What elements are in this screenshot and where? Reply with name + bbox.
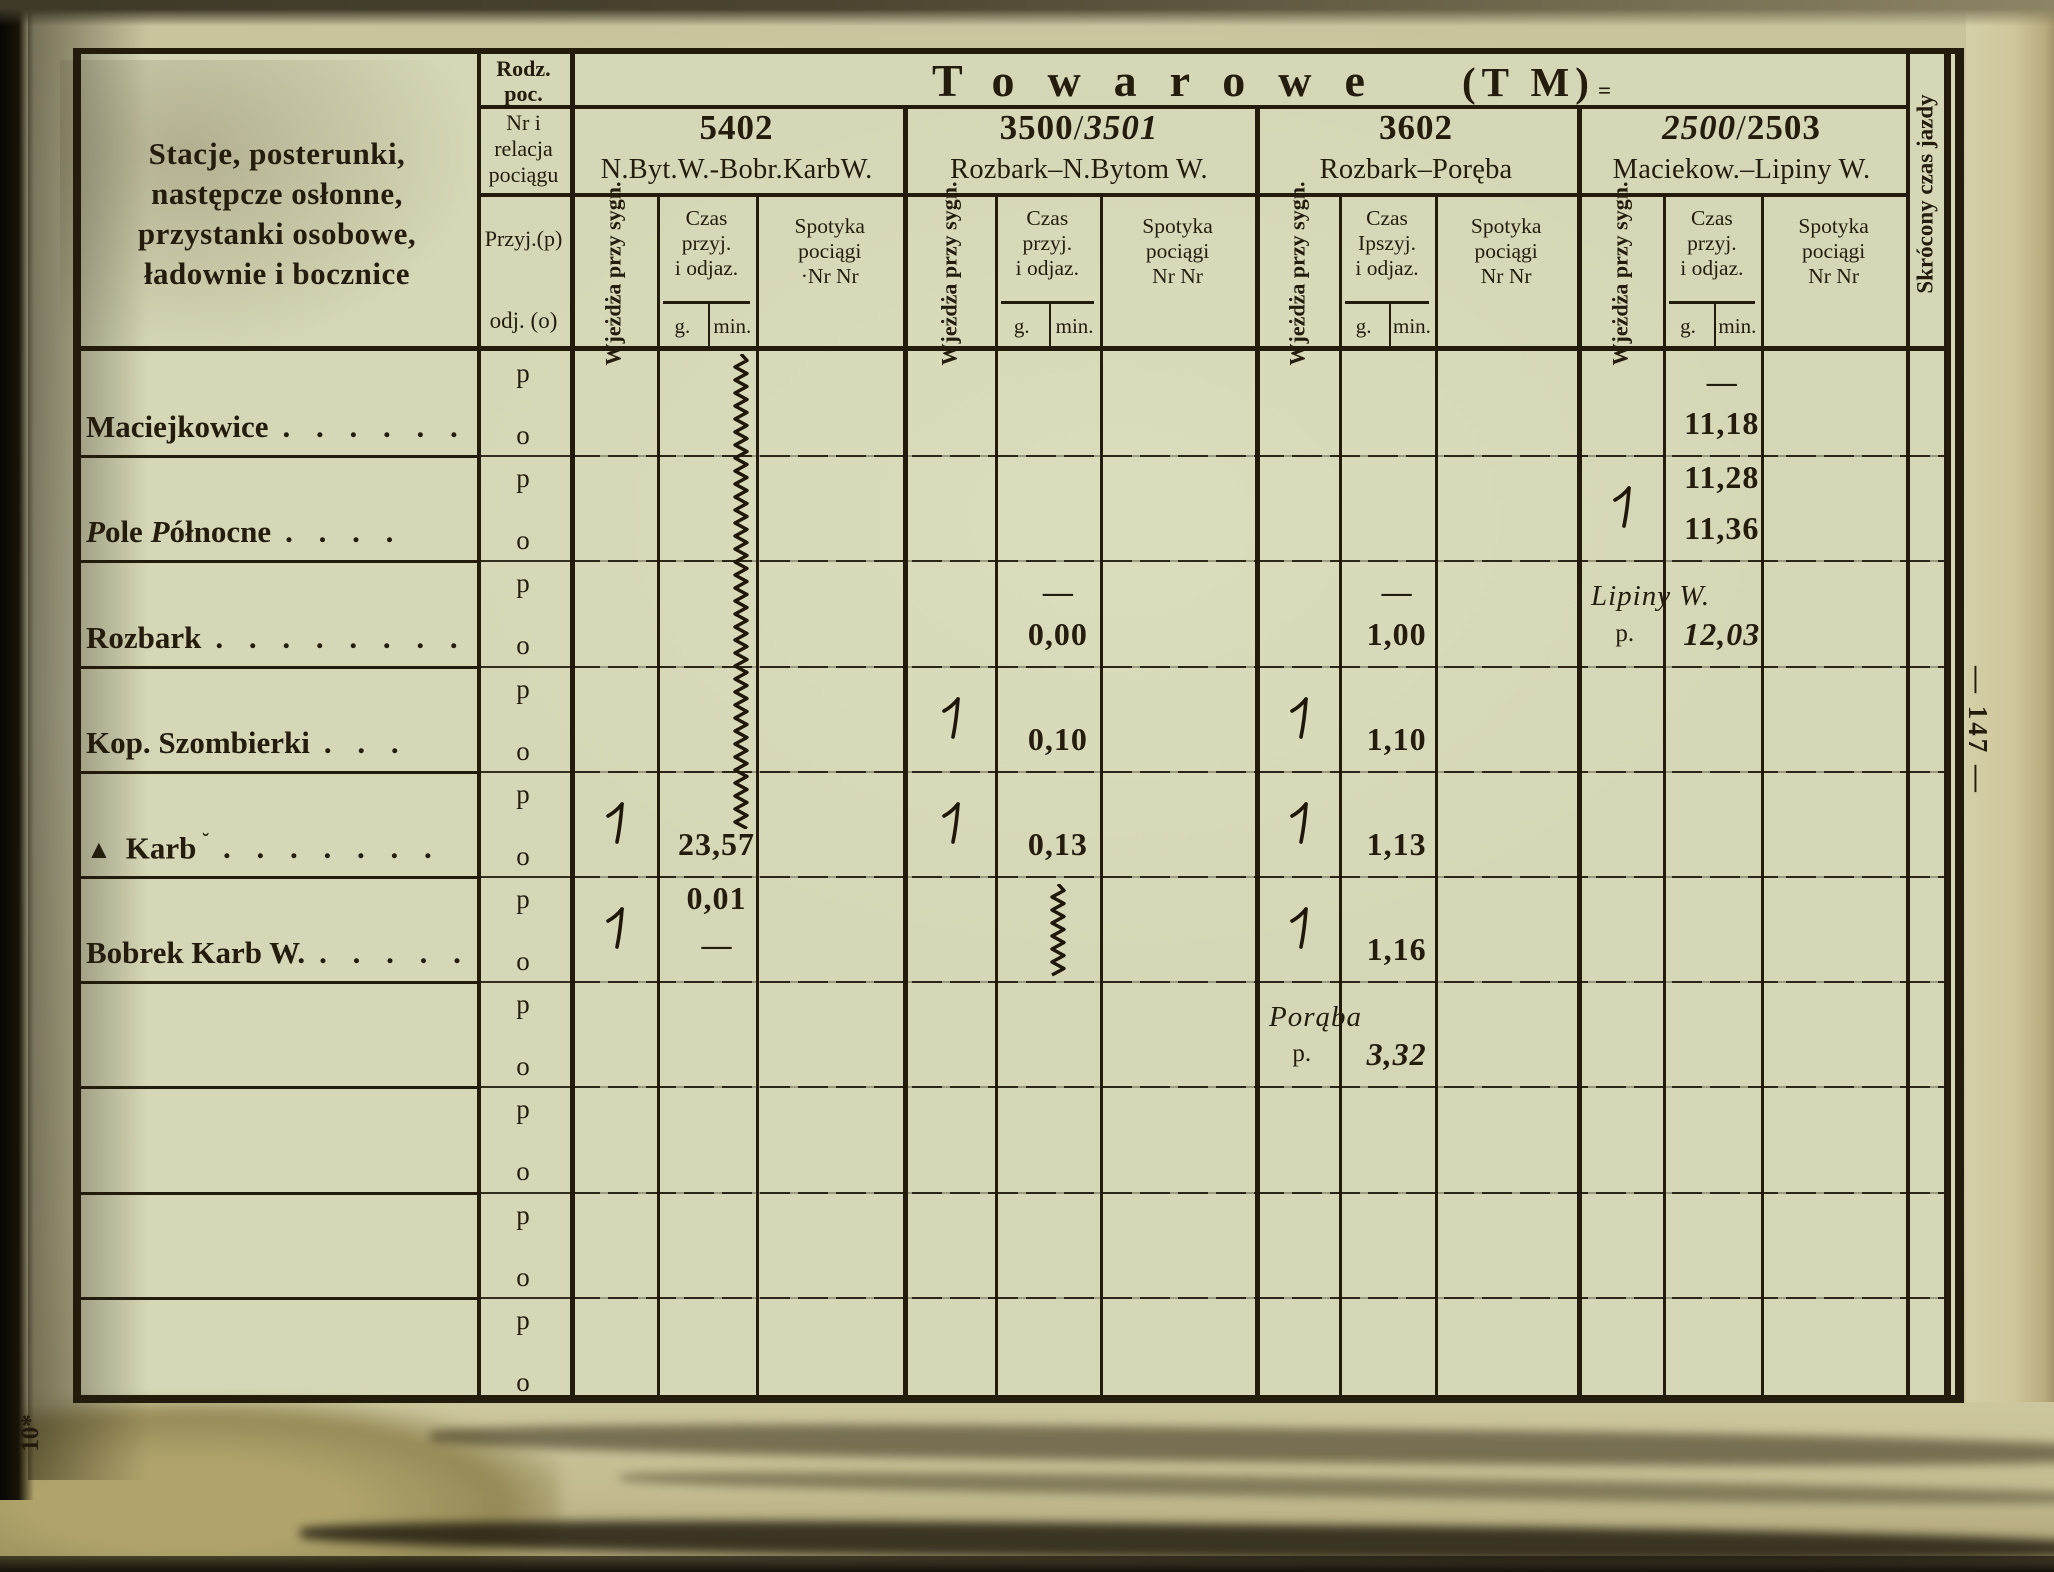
row-letter-p: p [489, 1094, 557, 1125]
subheader-wjezdza-box: Wjeżdża przy sygn. [1257, 200, 1337, 346]
book-gutter-shadow [0, 0, 34, 1500]
row-letter-o: o [489, 736, 557, 767]
subheader-wjezdza-box: Wjeżdża przy sygn. [905, 200, 993, 346]
page-bottom-shadow [0, 1556, 2054, 1572]
station-row-underline [81, 876, 477, 879]
wjezdza-czas-divider [1339, 193, 1342, 1402]
train-number: 3500/3501 [903, 108, 1255, 148]
route-underline [477, 193, 1906, 197]
subheader-g: g. [1339, 314, 1389, 339]
station-name-part: Karb [126, 830, 197, 865]
row-letter-o: o [489, 946, 557, 977]
page-number-box: — 147 — [1942, 640, 2012, 820]
station-row-underline [81, 666, 477, 669]
rodz-row-divider [477, 981, 570, 983]
train-number: 5402 [570, 108, 903, 148]
subheader-min: min. [1049, 314, 1100, 339]
subheader-spotyka: Spotyka pociągi Nr Nr [1100, 214, 1255, 289]
subheader-min: min. [1714, 314, 1762, 339]
train-number-part: 3500 [1000, 108, 1074, 147]
gmin-overline [1669, 301, 1756, 304]
czas-spotyka-divider [756, 193, 759, 1402]
train-number-part: 2503 [1747, 108, 1821, 147]
cell-dash: — [1662, 366, 1782, 400]
train-number-part: 2500 [1662, 108, 1736, 147]
subheader-wjezdza: Wjeżdża przy sygn. [936, 181, 961, 365]
station-mark: ˘ [202, 830, 209, 852]
rodz-row-divider [477, 455, 570, 457]
row-letter-o: o [489, 1156, 557, 1187]
cell-time: 1,13 [1317, 826, 1477, 863]
dot-leader: . . . . . . . . [215, 620, 466, 655]
cell-dash: — [998, 576, 1118, 610]
station-label: ▲Karb˘. . . . . . . [86, 830, 441, 866]
cell-dash: — [657, 929, 777, 963]
table-border-bottom [73, 1395, 1964, 1403]
top-page-edge [0, 0, 2054, 26]
subheader-g: g. [1663, 314, 1714, 339]
station-label: Pole Północne. . . . [86, 514, 402, 550]
row-letter-p: p [489, 1200, 557, 1231]
stations-rodz-divider [477, 48, 481, 1402]
train-number-part: 5402 [700, 108, 774, 147]
station-row-underline [81, 1192, 477, 1195]
page-number: — 147 — [1962, 666, 1993, 795]
rodz-row-divider [477, 1192, 570, 1194]
corner-mark-box: 10* [0, 1398, 76, 1468]
nr-relacja-header: Nr i relacja pociągu [477, 110, 570, 188]
train-number-part: / [1074, 108, 1085, 147]
cell-time: 11,36 [1642, 510, 1802, 547]
row-letter-o: o [489, 1051, 557, 1082]
station-name-part: P [151, 514, 170, 549]
subheader-wjezdza-box: Wjeżdża przy sygn. [1579, 200, 1661, 346]
station-name-part: Rozbark [86, 620, 201, 655]
enters-at-signal-icon [941, 801, 967, 845]
station-row-underline [81, 981, 477, 984]
czas-spotyka-divider [1435, 193, 1438, 1402]
wjezdza-czas-divider [995, 193, 998, 1402]
rodz-row-divider [477, 1297, 570, 1299]
subheader-czas: Czas przyj. i odjaz. [1663, 206, 1762, 281]
subheader-spotyka: Spotyka pociągi Nr Nr [1761, 214, 1906, 289]
station-name-part: ółnocne [170, 514, 272, 549]
rodz-row-divider [477, 560, 570, 562]
rodz-row-divider [477, 876, 570, 878]
czas-spotyka-divider [1100, 193, 1103, 1402]
row-letter-o: o [489, 630, 557, 661]
cell-time: 0,01 [637, 880, 797, 917]
subheader-min: min. [1389, 314, 1436, 339]
subheader-wjezdza-box: Wjeżdża przy sygn. [572, 200, 655, 346]
station-name-part: Kop. Szombierki [86, 725, 310, 760]
dot-leader: . . . . . . [282, 409, 466, 444]
row-letter-o: o [489, 1262, 557, 1293]
subheader-g: g. [657, 314, 709, 339]
station-label: Rozbark. . . . . . . . [86, 620, 467, 656]
gmin-overline [663, 301, 751, 304]
station-label: Bobrek Karb W.. . . . . [86, 935, 470, 971]
row-letter-p: p [489, 779, 557, 810]
table-border-top [73, 48, 1964, 54]
scanned-timetable-page: Stacje, posterunki, następcze osłonne, p… [0, 0, 2054, 1572]
block-divider [570, 771, 1944, 773]
subheader-g: g. [995, 314, 1050, 339]
station-triangle-icon: ▲ [86, 835, 112, 864]
row-letter-p: p [489, 358, 557, 389]
rodz-poc-header: Rodz. poc. [477, 56, 570, 106]
block-divider [570, 876, 1944, 878]
group-title-towarowe: Towarowe [932, 54, 1398, 107]
enters-at-signal-icon [1289, 906, 1315, 950]
station-row-underline [81, 455, 477, 458]
row-letter-p: p [489, 989, 557, 1020]
cell-time: 1,10 [1317, 721, 1477, 758]
block-divider [570, 1192, 1944, 1194]
block-divider [570, 666, 1944, 668]
station-name-part: Bobrek Karb W. [86, 935, 305, 970]
cell-dash: — [1337, 576, 1457, 610]
shortened-travel-time-label: Skrócony czas jazdy [1913, 94, 1939, 293]
no-stop-squiggle-icon [1048, 884, 1068, 981]
rodz-row-divider [477, 771, 570, 773]
station-label: Kop. Szombierki. . . [86, 725, 408, 761]
dot-leader: . . . . [285, 514, 402, 549]
dot-leader: . . . . . . . [223, 830, 441, 865]
enters-at-signal-icon [1612, 485, 1638, 529]
subheader-czas: Czas Ipszyj. i odjaz. [1339, 206, 1436, 281]
row-letter-p: p [489, 568, 557, 599]
enters-at-signal-icon [1289, 696, 1315, 740]
station-row-underline [81, 1086, 477, 1089]
cell-time: 11,18 [1642, 405, 1802, 442]
dot-leader: . . . [324, 725, 408, 760]
row-letter-p: p [489, 1305, 557, 1336]
gmin-overline [1345, 301, 1430, 304]
station-name-part: P [86, 514, 105, 549]
cell-time: 23,57 [637, 826, 797, 863]
enters-at-signal-icon [1289, 801, 1315, 845]
row-letter-o: o [489, 1367, 557, 1398]
station-row-underline [81, 1297, 477, 1300]
enters-at-signal-icon [605, 906, 631, 950]
cell-time: 1,00 [1317, 616, 1477, 653]
subheader-wjezdza: Wjeżdża przy sygn. [601, 181, 626, 365]
rodz-row-divider [477, 1086, 570, 1088]
station-name-part: Maciejkowice [86, 409, 268, 444]
row-letter-p: p [489, 884, 557, 915]
row-letter-p: p [489, 674, 557, 705]
group-title-tm: (T M) [1462, 58, 1595, 106]
table-border-left [73, 48, 81, 1402]
cell-time: 1,16 [1317, 931, 1477, 968]
enters-at-signal-icon [605, 801, 631, 845]
subheader-czas: Czas przyj. i odjaz. [657, 206, 757, 281]
table-border-right-inner [1944, 48, 1951, 1402]
cell-destination-name: Lipiny W. [1591, 580, 1710, 613]
subheader-wjezdza: Wjeżdża przy sygn. [1607, 181, 1632, 365]
train-number: 3602 [1255, 108, 1577, 148]
train-number-part: / [1736, 108, 1747, 147]
stations-column-header: Stacje, posterunki, następcze osłonne, p… [83, 134, 471, 294]
cell-time: 3,32 [1317, 1036, 1477, 1073]
enters-at-signal-icon [941, 696, 967, 740]
subheader-min: min. [708, 314, 756, 339]
corner-signature-mark: 10* [17, 1414, 45, 1452]
station-row-underline [81, 771, 477, 774]
footnote-mark: = [1598, 78, 1610, 104]
row-letter-o: o [489, 841, 557, 872]
cell-destination-name: Porąba [1269, 1001, 1362, 1034]
block-divider [570, 455, 1944, 457]
block-divider [570, 1086, 1944, 1088]
no-stop-squiggle-icon [731, 354, 751, 829]
odj-o-label: odj. (o) [474, 308, 573, 334]
skr-col-divider [1906, 48, 1910, 1402]
station-label: Maciejkowice. . . . . . [86, 409, 467, 445]
cell-time: 0,00 [978, 616, 1138, 653]
station-name-part: ole [105, 514, 151, 549]
block-divider [570, 981, 1944, 983]
cell-time: 12,03 [1642, 616, 1802, 653]
wjezdza-czas-divider [657, 193, 660, 1402]
przyj-p-label: Przyj.(p) [474, 226, 573, 252]
block-divider [570, 560, 1944, 562]
station-row-underline [81, 560, 477, 563]
train-number-part: 3501 [1084, 108, 1158, 147]
subheader-wjezdza: Wjeżdża przy sygn. [1284, 181, 1309, 365]
train-number: 2500/2503 [1577, 108, 1906, 148]
dot-leader: . . . . . [319, 935, 470, 970]
cell-time: 0,13 [978, 826, 1138, 863]
train-number-part: 3602 [1379, 108, 1453, 147]
row-letter-o: o [489, 525, 557, 556]
subheader-czas: Czas przyj. i odjaz. [995, 206, 1101, 281]
row-letter-o: o [489, 420, 557, 451]
rodz-row-divider [477, 666, 570, 668]
gmin-overline [1001, 301, 1095, 304]
table-border-right-outer [1955, 48, 1964, 1402]
subheader-spotyka: Spotyka pociągi Nr Nr [1435, 214, 1577, 289]
data-top-rule [73, 346, 1951, 351]
subheader-spotyka: Spotyka pociągi ·Nr Nr [756, 214, 903, 289]
cell-time: 11,28 [1642, 459, 1802, 496]
cell-time: 0,10 [978, 721, 1138, 758]
row-letter-p: p [489, 463, 557, 494]
block-divider [570, 1297, 1944, 1299]
